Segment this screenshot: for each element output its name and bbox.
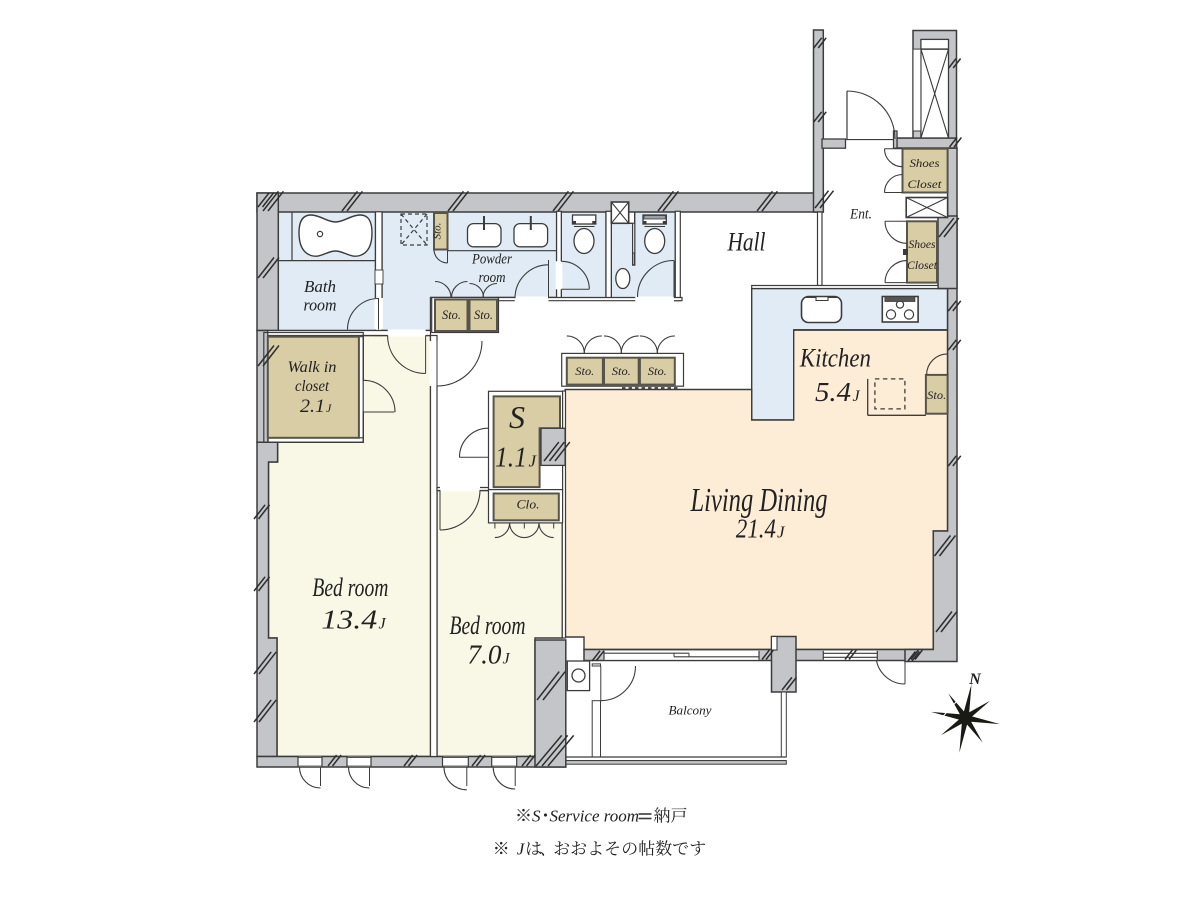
svg-text:Sto.: Sto.	[474, 308, 493, 322]
svg-text:5.4: 5.4	[815, 377, 851, 407]
svg-text:room: room	[479, 270, 506, 286]
svg-text:J: J	[379, 615, 387, 632]
svg-text:Sto.: Sto.	[432, 223, 444, 240]
svg-text:S: S	[532, 807, 541, 826]
svg-text:13.4: 13.4	[321, 604, 377, 634]
svg-text:7.0: 7.0	[468, 640, 503, 670]
svg-text:Walk in: Walk in	[288, 359, 337, 376]
svg-text:Kitchen: Kitchen	[799, 344, 871, 373]
svg-text:Balcony: Balcony	[669, 703, 712, 718]
svg-text:1.1: 1.1	[495, 443, 527, 474]
svg-text:Sto.: Sto.	[648, 364, 667, 378]
svg-text:2.1: 2.1	[300, 396, 325, 417]
svg-text:J: J	[326, 401, 332, 415]
svg-text:J: J	[503, 651, 511, 668]
svg-text:Sto.: Sto.	[442, 308, 461, 322]
svg-text:S: S	[509, 399, 525, 435]
svg-text:Closet: Closet	[907, 260, 938, 272]
svg-text:Ent.: Ent.	[849, 207, 872, 223]
svg-text:Bed room: Bed room	[312, 573, 388, 602]
svg-text:N: N	[968, 671, 982, 688]
svg-text:Sto.: Sto.	[575, 364, 594, 378]
svg-text:J: J	[517, 840, 526, 859]
svg-text:Shoes: Shoes	[909, 239, 937, 251]
svg-text:Closet: Closet	[908, 179, 943, 191]
svg-text:Sto.: Sto.	[612, 364, 631, 378]
svg-text:closet: closet	[295, 378, 330, 395]
svg-text:Clo.: Clo.	[517, 497, 540, 512]
svg-text:Hall: Hall	[727, 228, 766, 257]
svg-text:Shoes: Shoes	[910, 158, 941, 170]
svg-text:J: J	[853, 388, 861, 405]
svg-text:Service room: Service room	[550, 807, 640, 826]
svg-text:21.4: 21.4	[736, 513, 776, 543]
svg-text:Sto.: Sto.	[927, 388, 946, 402]
svg-text:Bed room: Bed room	[450, 611, 526, 640]
svg-text:Bath: Bath	[304, 277, 336, 296]
svg-text:room: room	[304, 296, 337, 315]
svg-text:Powder: Powder	[471, 252, 512, 268]
